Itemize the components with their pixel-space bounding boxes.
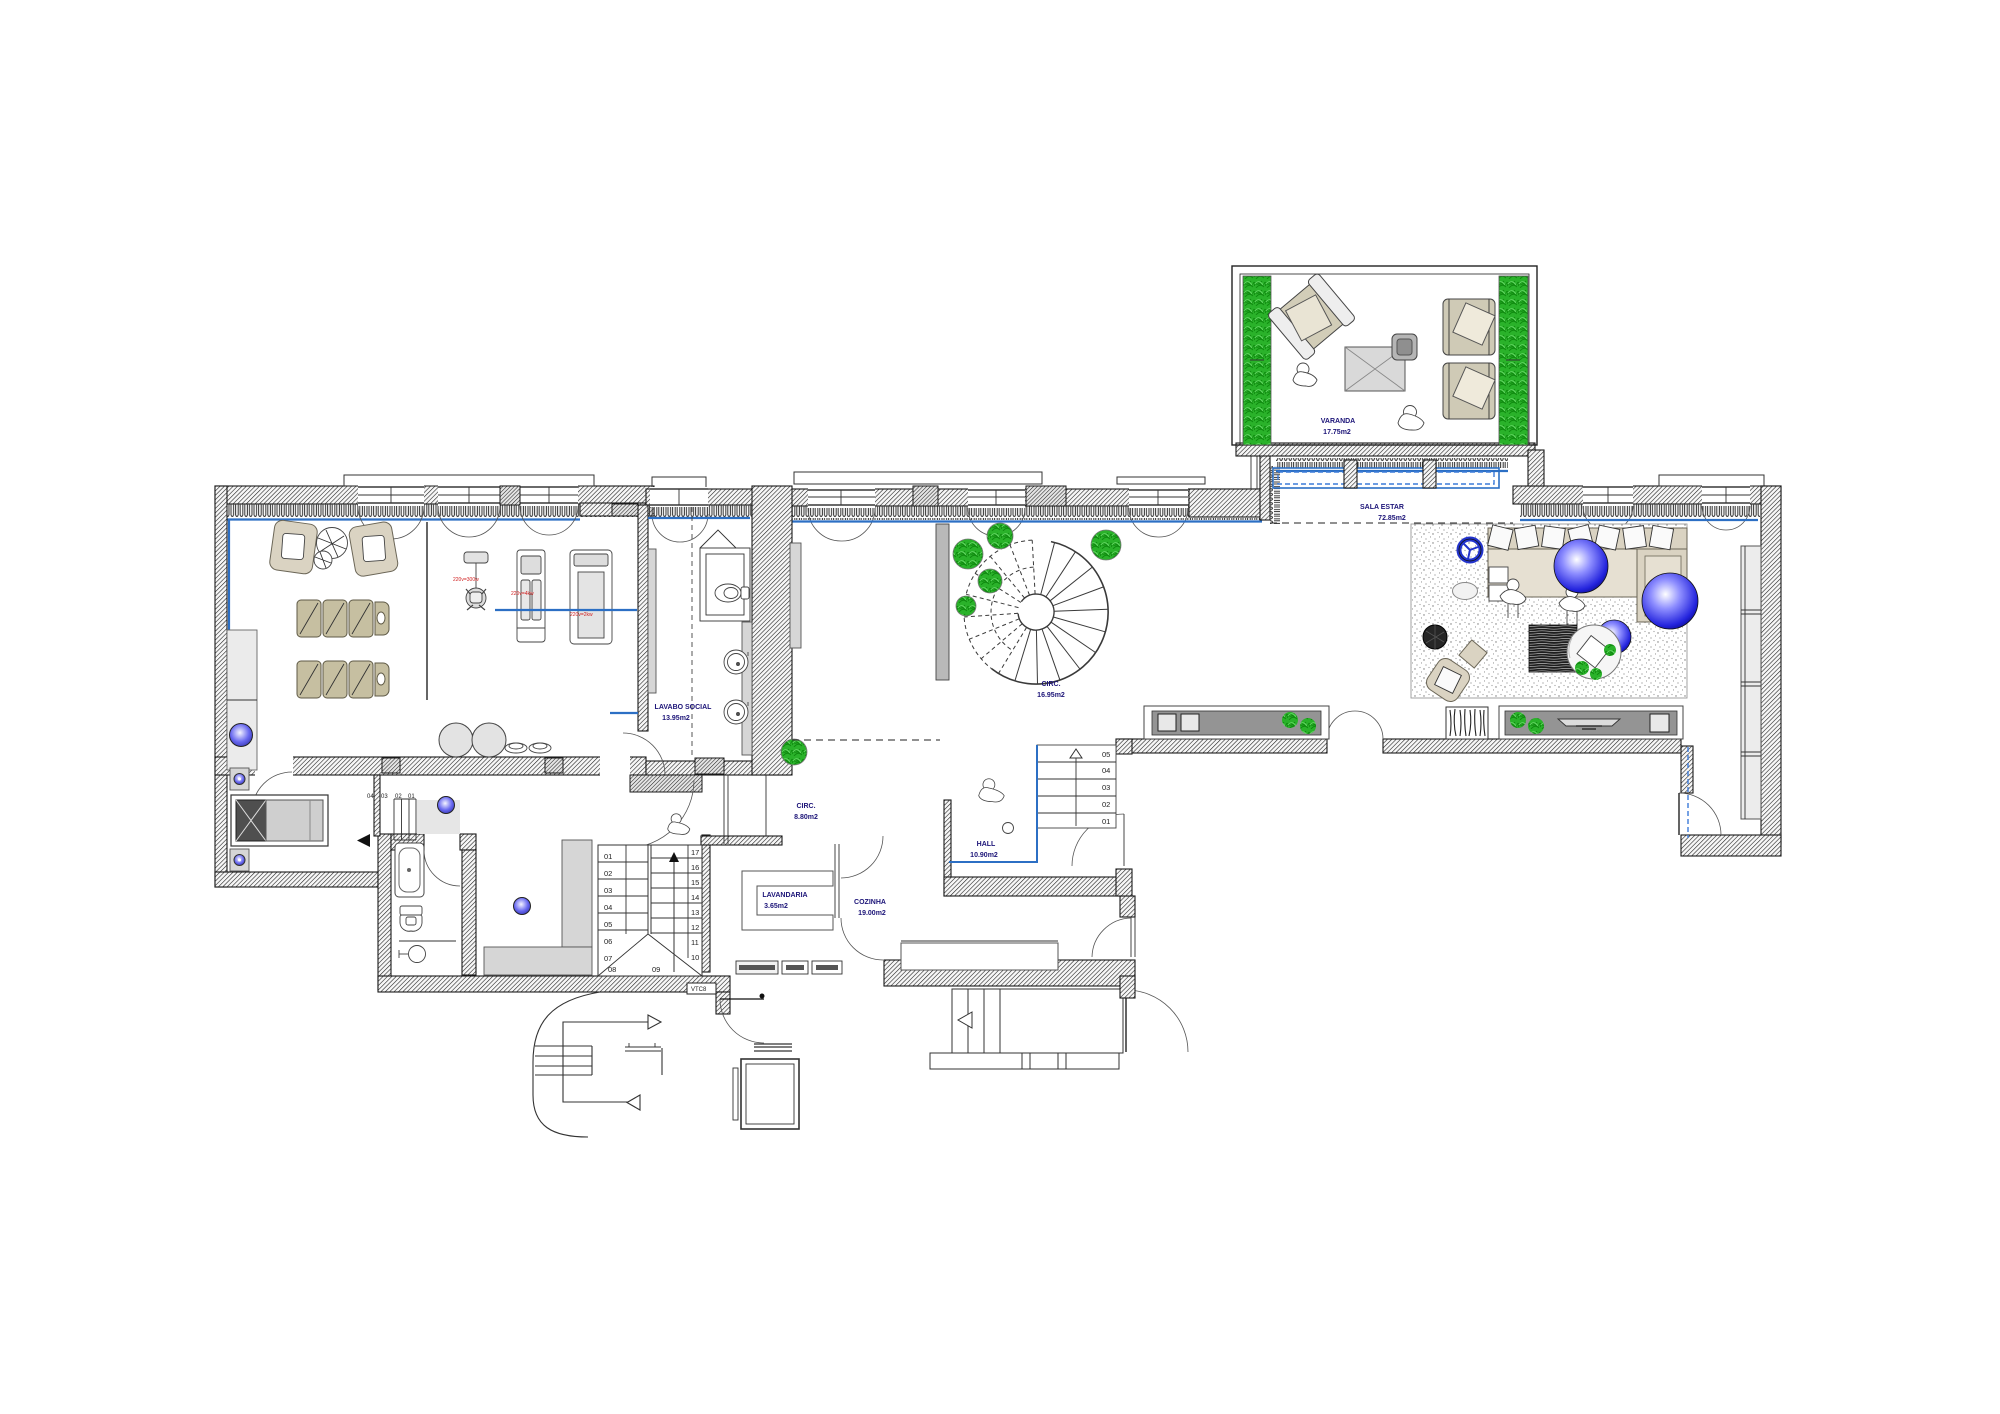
svg-text:CIRC.: CIRC. — [796, 803, 815, 810]
svg-text:15: 15 — [691, 878, 699, 887]
svg-text:LAVABO SOCIAL: LAVABO SOCIAL — [655, 704, 713, 711]
svg-text:10.90m2: 10.90m2 — [970, 852, 998, 859]
svg-text:06: 06 — [604, 937, 612, 946]
svg-text:220v=300w: 220v=300w — [453, 577, 479, 583]
svg-text:16: 16 — [691, 863, 699, 872]
svg-text:13.95m2: 13.95m2 — [662, 715, 690, 722]
svg-text:14: 14 — [691, 893, 699, 902]
svg-text:16.95m2: 16.95m2 — [1037, 692, 1065, 699]
svg-text:13: 13 — [691, 908, 699, 917]
svg-text:03: 03 — [1102, 783, 1110, 792]
svg-text:01: 01 — [604, 852, 612, 861]
svg-text:05: 05 — [604, 920, 612, 929]
svg-text:09: 09 — [652, 965, 660, 974]
svg-text:VARANDA: VARANDA — [1321, 418, 1355, 425]
svg-text:HALL: HALL — [977, 841, 996, 848]
svg-text:220v=4kw: 220v=4kw — [511, 591, 534, 597]
svg-text:17: 17 — [691, 848, 699, 857]
svg-text:03: 03 — [381, 794, 388, 800]
svg-text:02: 02 — [395, 794, 402, 800]
svg-text:05: 05 — [1102, 750, 1110, 759]
svg-text:10: 10 — [691, 953, 699, 962]
svg-text:72.85m2: 72.85m2 — [1378, 515, 1406, 522]
svg-text:12: 12 — [691, 923, 699, 932]
svg-text:220v=2kw: 220v=2kw — [570, 612, 593, 618]
svg-text:04: 04 — [367, 794, 374, 800]
svg-text:SALA ESTAR: SALA ESTAR — [1360, 504, 1404, 511]
svg-text:LAVANDARIA: LAVANDARIA — [762, 892, 807, 899]
svg-text:VTC8: VTC8 — [691, 987, 707, 993]
svg-text:17.75m2: 17.75m2 — [1323, 429, 1351, 436]
svg-text:COZINHA: COZINHA — [854, 899, 886, 906]
svg-text:8.80m2: 8.80m2 — [794, 814, 818, 821]
svg-text:01: 01 — [1102, 817, 1110, 826]
svg-text:02: 02 — [1102, 800, 1110, 809]
svg-text:11: 11 — [691, 938, 699, 947]
svg-text:08: 08 — [608, 965, 616, 974]
svg-text:3.65m2: 3.65m2 — [764, 903, 788, 910]
svg-text:03: 03 — [604, 886, 612, 895]
svg-text:04: 04 — [1102, 766, 1110, 775]
svg-text:CIRC.: CIRC. — [1041, 681, 1060, 688]
svg-text:02: 02 — [604, 869, 612, 878]
svg-text:04: 04 — [604, 903, 612, 912]
svg-text:19.00m2: 19.00m2 — [858, 910, 886, 917]
svg-text:01: 01 — [408, 794, 415, 800]
svg-text:07: 07 — [604, 954, 612, 963]
